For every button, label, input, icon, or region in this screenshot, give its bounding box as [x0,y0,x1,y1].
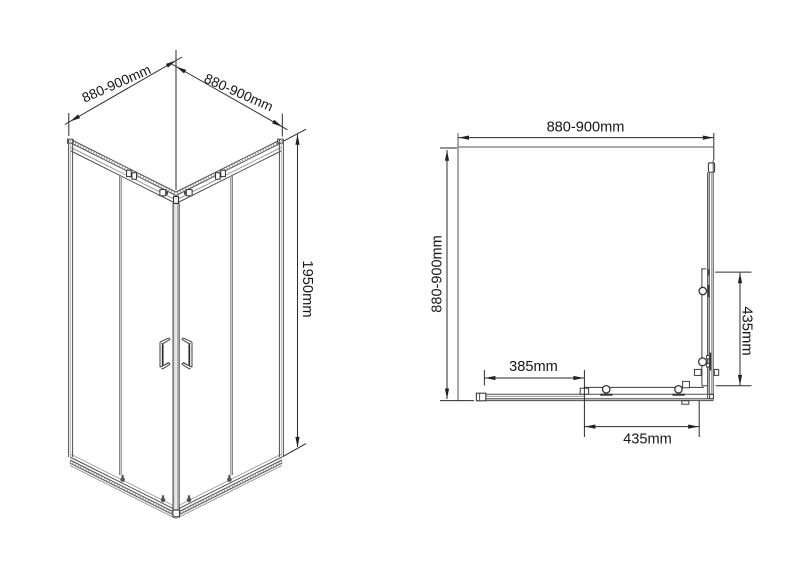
svg-text:880-900mm: 880-900mm [547,120,625,136]
svg-text:435mm: 435mm [738,306,754,355]
svg-text:880-900mm: 880-900mm [430,235,446,312]
svg-text:435mm: 435mm [623,432,672,448]
svg-text:385mm: 385mm [509,359,558,375]
svg-text:1950mm: 1950mm [299,260,315,317]
